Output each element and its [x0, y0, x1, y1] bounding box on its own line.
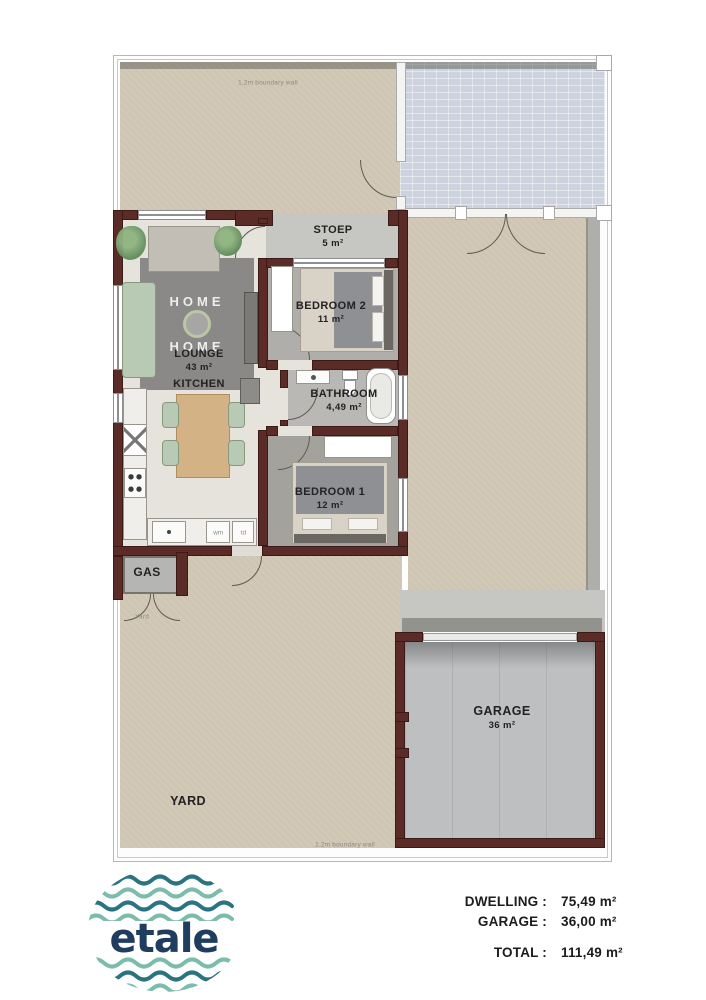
garage-floor: [405, 642, 597, 840]
boundary-wall-label-bottom: 1.2m boundary wall: [315, 841, 375, 848]
etale-logo-graphic: etale: [84, 868, 244, 993]
garage-sched-label: GARAGE :: [425, 912, 547, 932]
dining-table: [176, 394, 230, 478]
sink-unit: [123, 424, 147, 456]
garage-name: GARAGE: [473, 704, 530, 720]
stoep-label: STOEP 5 m²: [313, 224, 352, 250]
pillow: [348, 518, 378, 530]
daybed: [148, 226, 220, 272]
bedroom1-name: BEDROOM 1: [295, 486, 365, 500]
wall-corridor-stub: [280, 420, 288, 426]
gas-wall-left: [113, 556, 123, 600]
side-yard-right: [408, 218, 588, 592]
garage-sched-value: 36,00 m²: [547, 912, 617, 932]
bedroom2-window: [293, 258, 385, 268]
boundary-wall-label-top: 1.2m boundary wall: [238, 79, 298, 86]
wall-segment: [385, 258, 398, 268]
garage-wall-notch: [395, 712, 409, 722]
vanity-basin: [296, 370, 330, 384]
total-label: TOTAL :: [425, 943, 547, 963]
bedroom2-name: BEDROOM 2: [296, 300, 366, 314]
kitchen-counter-left: [123, 388, 147, 540]
garage-label: GARAGE 36 m²: [473, 704, 530, 732]
garage-wall-bottom: [395, 838, 605, 848]
schedule-row-total: TOTAL : 111,49 m²: [425, 943, 685, 963]
dwelling-label: DWELLING :: [425, 892, 547, 912]
lounge-top-window: [138, 210, 206, 220]
driveway-paving: [400, 62, 605, 212]
tv-unit: [244, 292, 258, 364]
drain-icon: [167, 530, 171, 534]
corner-pillar: [596, 55, 612, 71]
gas-label: GAS: [133, 565, 160, 580]
tumble-dryer-label: td: [240, 528, 245, 535]
boundary-shadow-right: [586, 218, 600, 590]
pillow: [372, 276, 384, 306]
dividing-wall-stub: [396, 196, 406, 210]
dividing-wall-top: [396, 62, 406, 162]
bathroom-right-window: [398, 375, 408, 420]
yard-door-threshold: [232, 546, 262, 556]
wall-segment: [266, 360, 278, 370]
bedroom1-headboard: [294, 534, 386, 543]
bedroom1-label: BEDROOM 1 12 m²: [295, 486, 365, 512]
wreath-icon: [183, 310, 211, 338]
wall-bottom-right: [262, 546, 408, 556]
bedroom2-label: BEDROOM 2 11 m²: [296, 300, 366, 326]
scullery-sink: [152, 521, 186, 543]
garage-door: [423, 633, 577, 641]
wall-bottom-left: [113, 546, 232, 556]
basin-icon: [311, 375, 316, 380]
hob: [124, 468, 146, 498]
stoep-name: STOEP: [313, 224, 352, 238]
total-value: 111,49 m²: [547, 943, 623, 963]
apron-shadow: [402, 618, 602, 632]
garage-jamb-left: [395, 632, 423, 642]
bedroom2-wardrobe: [271, 266, 293, 332]
schedule-row-dwelling: DWELLING : 75,49 m²: [425, 892, 685, 912]
etale-logo-text: etale: [109, 916, 218, 962]
area-schedule: DWELLING : 75,49 m² GARAGE : 36,00 m² TO…: [425, 892, 685, 963]
bedroom2-headboard: [384, 270, 393, 350]
kitchen-label: KITCHEN: [173, 378, 225, 392]
bathroom-label: BATHROOM 4,49 m²: [310, 388, 377, 414]
tumble-dryer: td: [232, 521, 254, 543]
wall-left: [113, 210, 123, 556]
gate-post-left: [455, 206, 467, 220]
wall-corridor: [280, 370, 288, 388]
bathroom-name: BATHROOM: [310, 388, 377, 402]
kitchen-left-window: [113, 393, 123, 423]
washing-machine-label: wm: [213, 528, 223, 535]
toilet-tank: [342, 370, 358, 380]
bedroom1-wardrobe: [324, 436, 392, 458]
garage-wall-notch: [395, 748, 409, 758]
wall-lounge-rooms: [258, 258, 268, 368]
dining-chair: [162, 440, 179, 466]
washing-machine: wm: [206, 521, 230, 543]
garage-jamb-right: [577, 632, 605, 642]
boundary-shadow-top: [120, 62, 605, 69]
wall-bath-bed1: [312, 426, 398, 436]
fence-pillar-right: [596, 205, 612, 221]
yard-name: YARD: [170, 794, 206, 810]
lounge-label: LOUNGE 43 m²: [174, 348, 223, 374]
schedule-row-garage: GARAGE : 36,00 m²: [425, 912, 685, 932]
dwelling-value: 75,49 m²: [547, 892, 617, 912]
pillow: [302, 518, 332, 530]
bedroom2-area: 11 m²: [296, 314, 366, 326]
garage-area: 36 m²: [473, 720, 530, 732]
gas-name: GAS: [133, 565, 160, 580]
lounge-area: 43 m²: [174, 362, 223, 374]
pillow: [372, 312, 384, 342]
bathroom-area: 4,49 m²: [310, 402, 377, 414]
wall-segment: [258, 218, 268, 224]
bedroom1-area: 12 m²: [295, 500, 365, 512]
wall-lounge-rooms-lower: [258, 430, 268, 546]
kitchen-name: KITCHEN: [173, 378, 225, 392]
dining-chair: [228, 402, 245, 428]
rug-text-line1: HOME: [170, 295, 225, 308]
dining-chair: [228, 440, 245, 466]
stoep-area: 5 m²: [313, 238, 352, 250]
dining-chair: [162, 402, 179, 428]
gas-wall-right: [176, 552, 188, 596]
bedroom1-right-window: [398, 478, 408, 532]
yard-small-label: Yard: [135, 613, 149, 620]
floor-plan-page: HOME HOME wm td STOEP 5 m² BEDROOM 2 11: [0, 0, 706, 1000]
garage-wall-left: [395, 632, 405, 848]
lounge-name: LOUNGE: [174, 348, 223, 362]
yard-label: YARD: [170, 794, 206, 810]
etale-logo: etale: [84, 868, 244, 993]
garage-wall-right: [595, 632, 605, 848]
wall-segment: [266, 426, 278, 436]
sofa: [122, 282, 156, 378]
fridge: [240, 378, 260, 404]
